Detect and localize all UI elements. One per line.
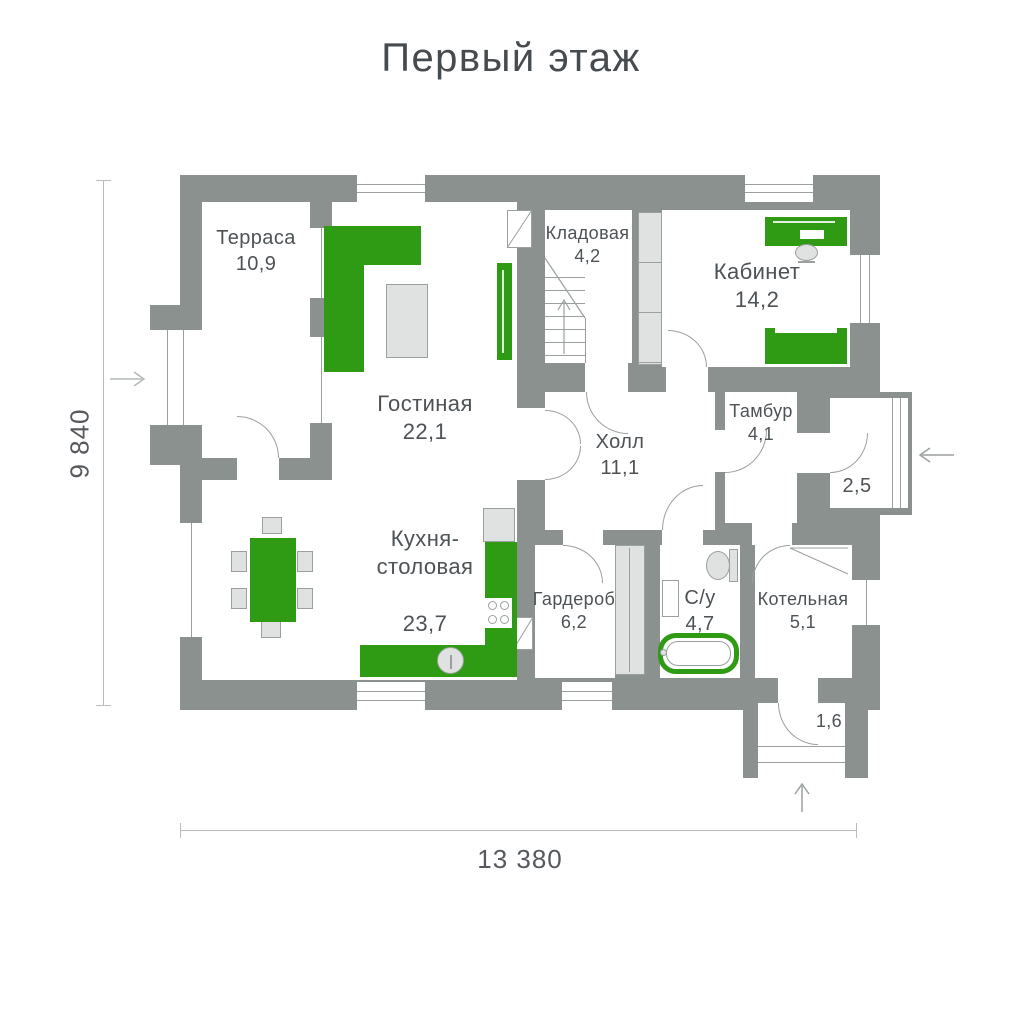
room-label-bathroom: С/у 4,7 bbox=[660, 586, 740, 637]
porch-step-line bbox=[758, 746, 845, 747]
floor-plan-canvas: Первый этаж bbox=[0, 0, 1022, 1024]
office-keyboard bbox=[800, 230, 824, 239]
room-label-boiler: Котельная 5,1 bbox=[752, 588, 854, 634]
dining-chair bbox=[262, 517, 282, 534]
office-sofa bbox=[765, 328, 847, 364]
office-sofa-back bbox=[775, 328, 837, 333]
porch-entry-arrow-icon bbox=[793, 782, 811, 814]
main-entry-arrow-icon bbox=[916, 446, 956, 464]
toilet-tank bbox=[729, 549, 738, 582]
dimension-line-bottom bbox=[180, 830, 856, 831]
porch-step-line bbox=[758, 762, 845, 763]
dimension-line-left bbox=[103, 180, 104, 705]
window-top-office bbox=[745, 175, 813, 202]
dining-chair bbox=[231, 588, 247, 609]
door-opening-office bbox=[666, 367, 708, 392]
door-opening-storage bbox=[585, 363, 628, 392]
room-label-terrace: Терраса 10,9 bbox=[202, 226, 310, 277]
room-label-vestibule: Тамбур 4,1 bbox=[722, 400, 800, 446]
window-left-kitchen bbox=[180, 523, 202, 637]
office-wardrobe bbox=[638, 212, 662, 365]
bathtub bbox=[658, 633, 739, 674]
room-label-living: Гостиная 22,1 bbox=[340, 390, 510, 446]
staircase-edge bbox=[585, 318, 586, 363]
dimension-tick bbox=[96, 180, 111, 181]
living-sofa-horizontal bbox=[324, 226, 421, 265]
room-label-kitchen: Кухня- столовая 23,7 bbox=[345, 497, 505, 666]
door-opening-porch bbox=[778, 678, 818, 703]
room-label-office: Кабинет 14,2 bbox=[672, 258, 842, 314]
window-bottom-kitchen bbox=[357, 682, 425, 710]
tv-screen-line bbox=[502, 270, 504, 353]
dining-chair bbox=[231, 551, 247, 572]
dimension-width-label: 13 380 bbox=[400, 844, 640, 875]
boiler-unit-diagonal bbox=[790, 546, 850, 576]
window-top-living bbox=[357, 175, 425, 202]
wardrobe-cabinet bbox=[615, 545, 645, 675]
door-opening-living-hall bbox=[517, 408, 545, 480]
door-opening-terrace bbox=[237, 458, 279, 480]
dimension-tick bbox=[856, 823, 857, 838]
terrace-entry-arrow-icon bbox=[108, 370, 148, 388]
dining-chair bbox=[297, 551, 313, 572]
page-title: Первый этаж bbox=[0, 36, 1022, 81]
terrace-steps bbox=[150, 330, 202, 425]
window-bottom-wardrobe bbox=[562, 682, 612, 710]
door-opening-wardrobe bbox=[563, 530, 603, 545]
tv-unit bbox=[497, 263, 512, 360]
window-right-entry bbox=[885, 398, 908, 508]
dimension-tick bbox=[96, 705, 111, 706]
dimension-height-label: 9 840 bbox=[65, 384, 96, 504]
dimension-tick bbox=[180, 823, 181, 838]
room-label-wardrobe: Гардероб 6,2 bbox=[530, 588, 618, 634]
wardrobe-cabinet-line bbox=[629, 548, 630, 672]
window-right-office bbox=[850, 255, 880, 323]
staircase-up-arrow-icon bbox=[556, 298, 572, 356]
room-label-hall: Холл 11,1 bbox=[560, 430, 680, 481]
room-label-porch: 1,6 bbox=[806, 710, 852, 733]
toilet-bowl bbox=[706, 551, 730, 580]
door-opening-bathroom bbox=[662, 530, 703, 545]
door-opening-vestibule-entry bbox=[797, 433, 830, 473]
room-label-entry: 2,5 bbox=[828, 474, 886, 500]
door-opening-boiler bbox=[752, 523, 792, 545]
shaft-top-diagonal bbox=[507, 210, 532, 248]
office-monitor bbox=[773, 221, 835, 223]
coffee-table bbox=[386, 284, 428, 358]
dining-chair bbox=[261, 621, 281, 638]
dining-table bbox=[250, 538, 296, 622]
bathtub-tap bbox=[660, 649, 667, 656]
window-right-boiler bbox=[852, 580, 880, 625]
dining-chair bbox=[297, 588, 313, 609]
room-label-storage: Кладовая 4,2 bbox=[540, 222, 635, 268]
